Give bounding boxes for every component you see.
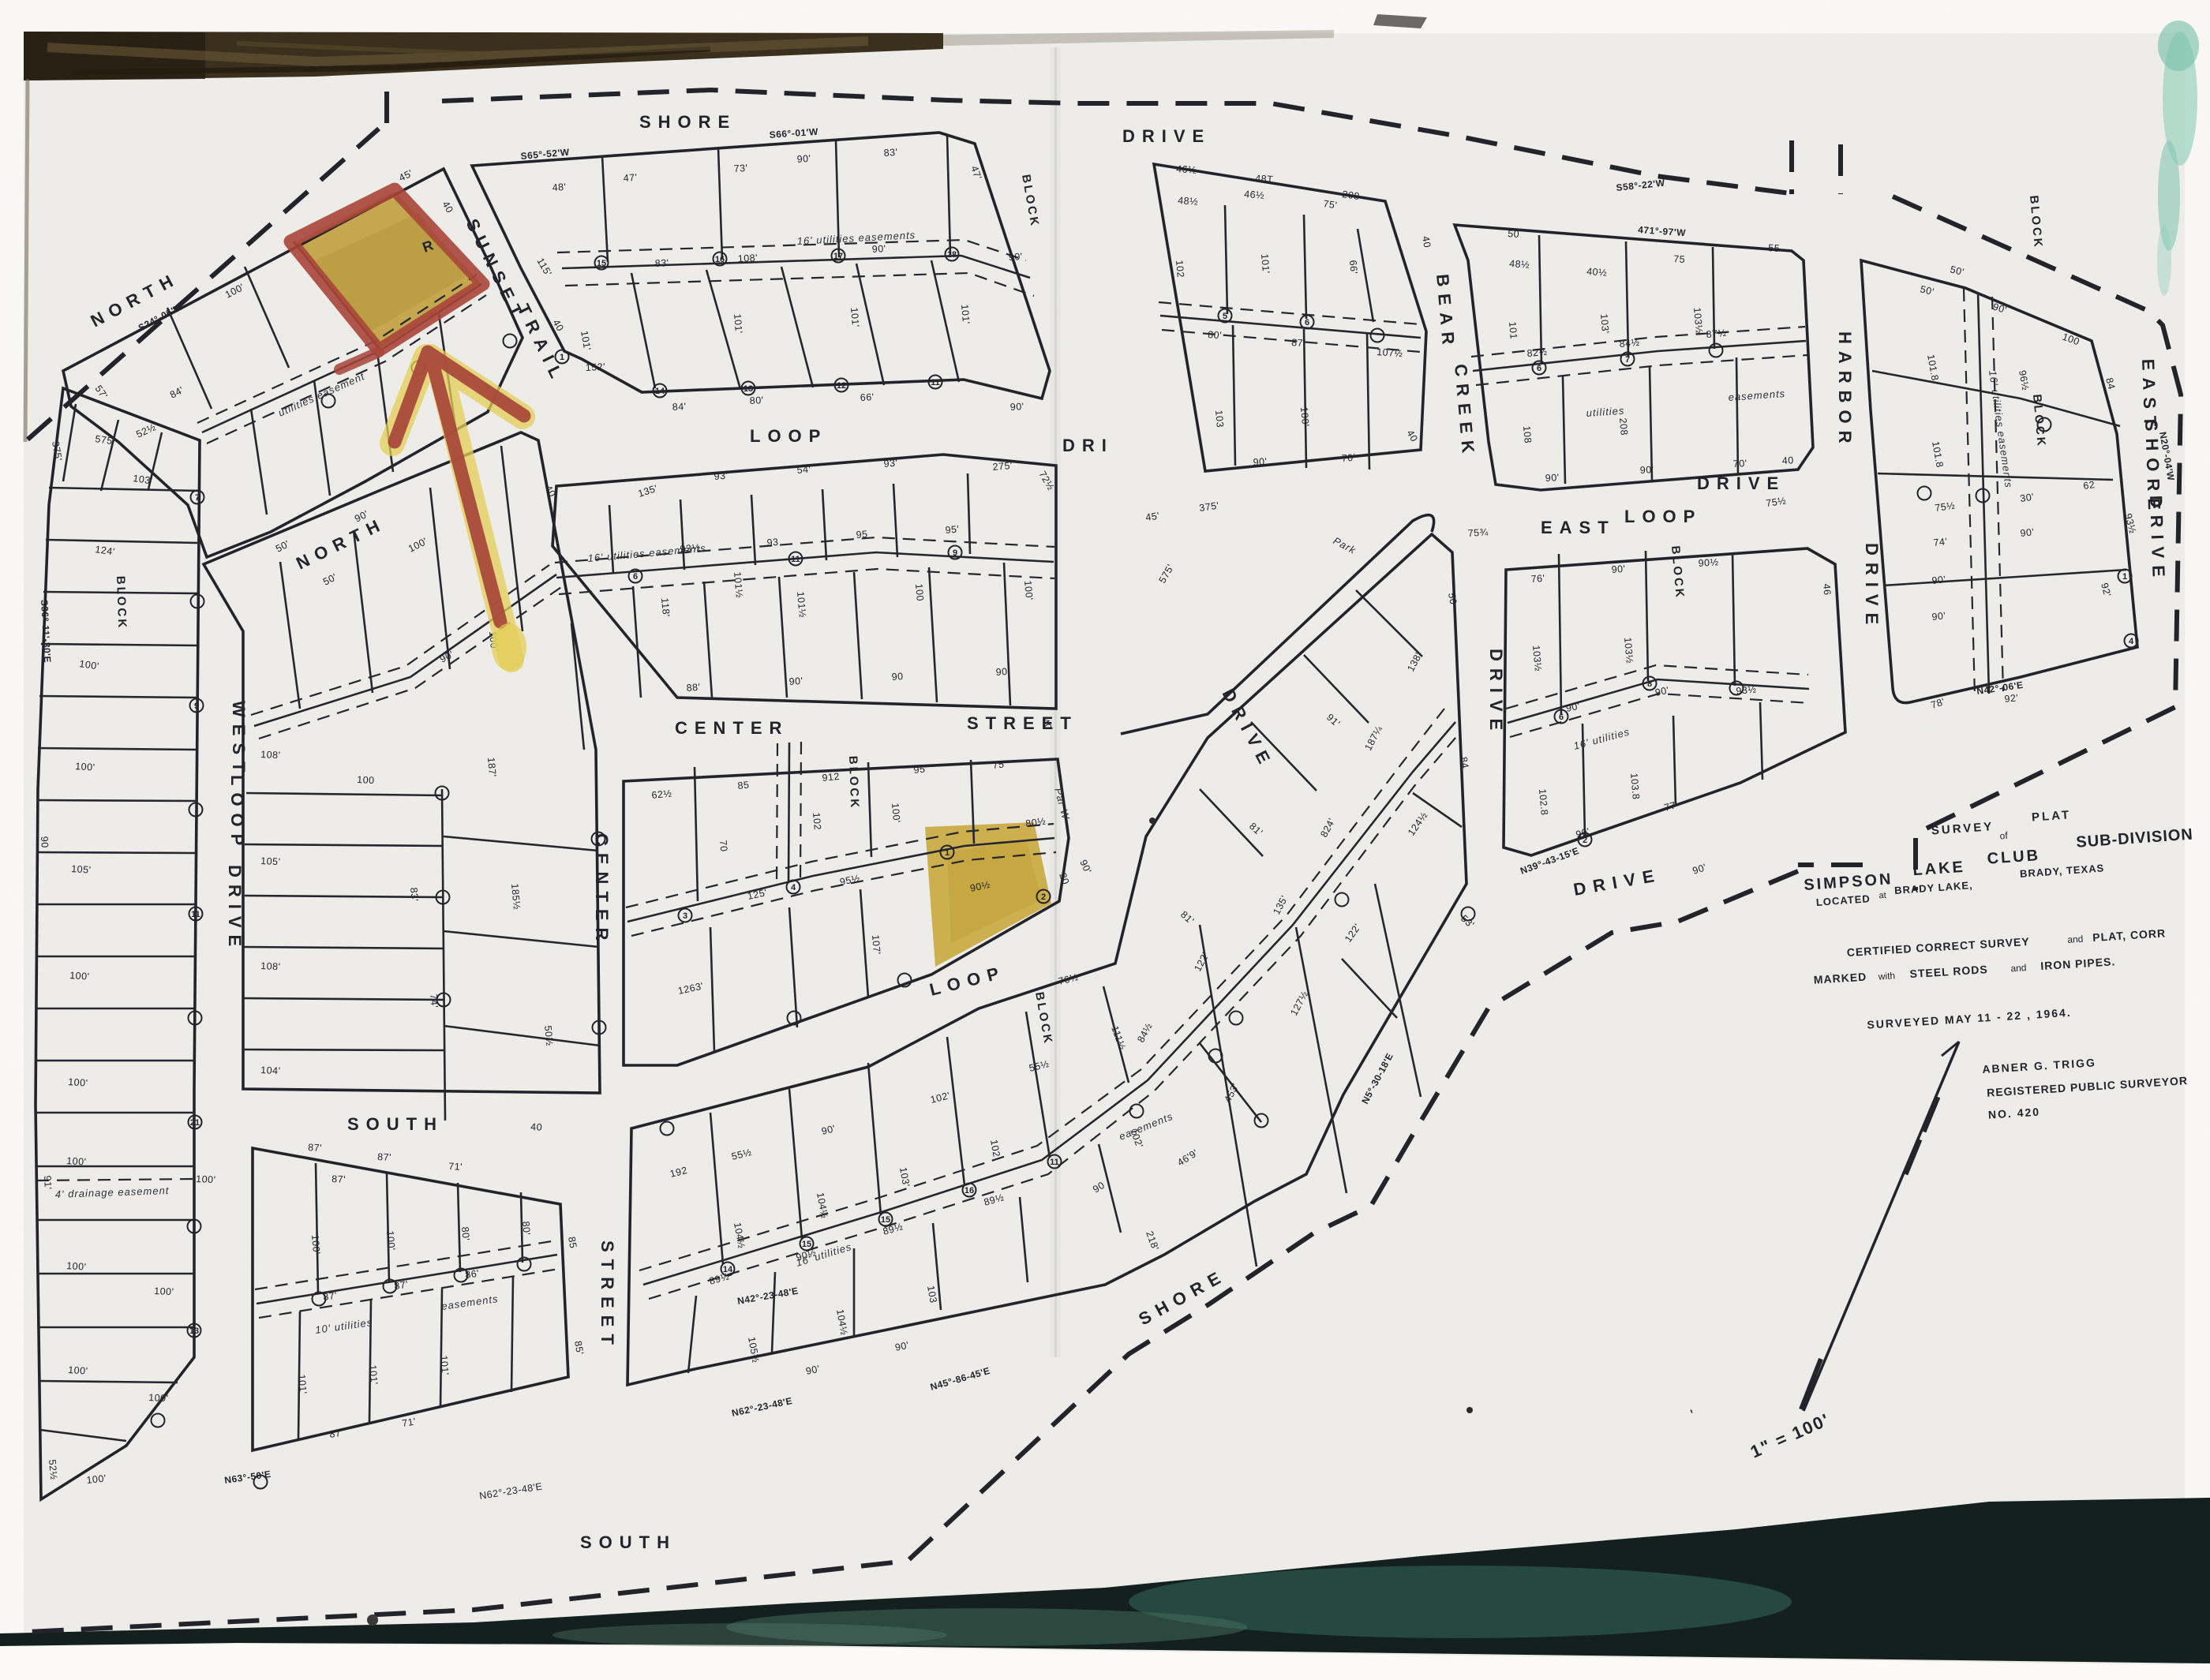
svg-text:90': 90' — [1611, 563, 1626, 575]
svg-text:DRI: DRI — [1062, 436, 1114, 455]
svg-text:90': 90' — [1931, 574, 1946, 586]
svg-text:105': 105' — [260, 855, 281, 867]
svg-text:75: 75 — [992, 759, 1005, 771]
svg-text:70': 70' — [1732, 458, 1747, 470]
svg-text:1: 1 — [560, 353, 564, 362]
svg-text:9: 9 — [194, 702, 199, 711]
svg-text:100': 100' — [1022, 580, 1035, 601]
svg-text:93: 93 — [766, 537, 779, 548]
svg-text:187': 187' — [485, 757, 498, 777]
svg-text:87': 87' — [377, 1151, 392, 1163]
svg-text:90': 90' — [871, 243, 886, 255]
svg-text:87': 87' — [331, 1173, 346, 1185]
svg-text:18: 18 — [947, 250, 957, 260]
svg-text:100': 100' — [66, 1155, 87, 1168]
svg-text:100': 100' — [86, 1472, 107, 1486]
svg-text:101': 101' — [732, 313, 744, 334]
svg-text:91': 91' — [42, 1175, 54, 1190]
svg-text:50½: 50½ — [542, 1025, 555, 1046]
svg-text:75¾: 75¾ — [1467, 526, 1489, 539]
svg-text:DRIVE: DRIVE — [1697, 473, 1785, 493]
svg-text:104': 104' — [260, 1064, 281, 1076]
svg-text:80': 80' — [520, 1221, 532, 1236]
svg-text:85: 85 — [566, 1236, 579, 1249]
svg-text:HARBOR: HARBOR — [1835, 331, 1855, 451]
svg-text:80': 80' — [749, 395, 764, 406]
svg-text:40½: 40½ — [1586, 266, 1608, 279]
svg-text:102.8: 102.8 — [1537, 788, 1550, 816]
svg-text:100': 100' — [69, 970, 90, 982]
svg-text:4: 4 — [2129, 637, 2134, 646]
svg-text:100': 100' — [1298, 406, 1311, 427]
svg-text:70': 70' — [1341, 452, 1356, 464]
svg-text:100': 100' — [384, 1230, 397, 1251]
svg-text:108': 108' — [260, 749, 281, 761]
svg-text:108': 108' — [260, 960, 281, 972]
svg-text:62: 62 — [2082, 479, 2096, 492]
svg-text:108: 108 — [1521, 425, 1534, 443]
svg-text:SOUTH: SOUTH — [347, 1114, 444, 1134]
svg-text:93': 93' — [714, 470, 729, 481]
svg-text:7: 7 — [195, 493, 200, 503]
svg-text:6: 6 — [1559, 713, 1564, 722]
svg-text:CENTER: CENTER — [675, 718, 788, 738]
svg-text:100: 100 — [913, 583, 926, 601]
svg-text:9: 9 — [953, 548, 957, 558]
svg-text:83': 83' — [883, 147, 898, 159]
svg-text:102: 102 — [1174, 260, 1186, 278]
svg-text:100': 100' — [196, 1173, 216, 1185]
svg-text:105': 105' — [71, 863, 92, 876]
svg-text:11: 11 — [1050, 1158, 1059, 1167]
svg-text:103½: 103½ — [1622, 637, 1635, 664]
svg-text:90': 90' — [1253, 456, 1268, 468]
svg-text:50: 50 — [1446, 592, 1459, 605]
svg-text:90': 90' — [2020, 526, 2035, 539]
svg-text:15: 15 — [802, 1240, 811, 1249]
svg-text:11: 11 — [931, 378, 940, 387]
svg-text:11: 11 — [191, 910, 200, 919]
svg-text:14: 14 — [723, 1265, 733, 1274]
svg-text:STREET: STREET — [597, 1240, 617, 1352]
svg-text:100': 100' — [75, 761, 96, 773]
svg-text:100': 100' — [66, 1260, 87, 1273]
svg-text:BLOCK: BLOCK — [114, 576, 129, 630]
svg-text:DRIVE: DRIVE — [225, 865, 245, 953]
svg-text:48½: 48½ — [1178, 195, 1199, 208]
svg-text:103½: 103½ — [1530, 645, 1544, 672]
svg-text:4: 4 — [791, 883, 796, 892]
svg-text:107': 107' — [870, 934, 882, 955]
svg-text:and: and — [2010, 962, 2027, 974]
svg-text:52½: 52½ — [47, 1459, 59, 1480]
svg-text:90': 90' — [788, 675, 803, 687]
svg-text:45': 45' — [1144, 511, 1160, 523]
svg-text:87½: 87½ — [1706, 327, 1727, 340]
svg-text:912: 912 — [822, 771, 841, 784]
svg-text:103: 103 — [1213, 410, 1226, 428]
svg-text:101½: 101½ — [795, 591, 808, 618]
svg-text:87': 87' — [308, 1142, 323, 1154]
svg-text:103': 103' — [1598, 313, 1611, 334]
svg-text:55: 55 — [1768, 242, 1781, 254]
svg-text:90': 90' — [1545, 472, 1560, 484]
svg-text:66': 66' — [860, 391, 875, 403]
svg-text:101': 101' — [848, 307, 861, 327]
svg-text:107½: 107½ — [1377, 346, 1403, 359]
svg-text:STREET: STREET — [967, 713, 1078, 733]
svg-text:100': 100' — [154, 1285, 174, 1297]
svg-text:85: 85 — [737, 780, 750, 791]
svg-text:90: 90 — [39, 836, 51, 848]
svg-text:95: 95 — [856, 529, 868, 541]
svg-text:13: 13 — [189, 1326, 199, 1336]
svg-text:70: 70 — [717, 840, 729, 852]
svg-text:80': 80' — [1208, 329, 1223, 341]
svg-text:6: 6 — [1305, 318, 1309, 327]
svg-text:118': 118' — [659, 597, 672, 617]
svg-text:101': 101' — [438, 1355, 451, 1375]
svg-text:PLAT: PLAT — [2032, 808, 2072, 824]
svg-text:EAST: EAST — [1541, 518, 1616, 537]
svg-text:16: 16 — [965, 1186, 974, 1195]
svg-text:102: 102 — [811, 812, 823, 830]
svg-text:101: 101 — [1507, 321, 1519, 339]
svg-text:100': 100' — [309, 1234, 322, 1255]
svg-text:of: of — [1999, 830, 2009, 842]
svg-text:101½: 101½ — [732, 571, 745, 598]
svg-text:12: 12 — [837, 381, 846, 391]
svg-text:DRIVE: DRIVE — [1862, 543, 1882, 631]
svg-text:101': 101' — [367, 1364, 380, 1385]
svg-text:46½: 46½ — [1176, 163, 1197, 176]
svg-text:2: 2 — [1583, 836, 1587, 845]
svg-text:75: 75 — [1673, 253, 1686, 265]
svg-text:40: 40 — [1420, 235, 1433, 249]
svg-text:152': 152' — [585, 361, 605, 373]
svg-text:48½: 48½ — [1509, 258, 1530, 271]
svg-text:CLUB: CLUB — [1987, 847, 2041, 868]
svg-text:75': 75' — [1323, 198, 1339, 211]
svg-text:90': 90' — [995, 666, 1010, 678]
svg-text:BLOCK: BLOCK — [846, 756, 861, 810]
svg-text:13: 13 — [744, 384, 753, 394]
svg-text:83': 83' — [654, 257, 669, 269]
svg-text:90': 90' — [796, 153, 811, 165]
svg-text:48T: 48T — [1255, 173, 1274, 185]
svg-text:103.8: 103.8 — [1628, 773, 1642, 800]
svg-text:80': 80' — [459, 1226, 471, 1241]
svg-text:74': 74' — [1933, 536, 1948, 548]
svg-text:40: 40 — [530, 1121, 543, 1133]
svg-text:46: 46 — [1821, 583, 1833, 596]
svg-text:WEST: WEST — [229, 701, 249, 780]
svg-text:100: 100 — [357, 774, 375, 786]
svg-text:100': 100' — [148, 1392, 169, 1404]
svg-text:76': 76' — [1530, 573, 1545, 585]
svg-text:LAKE: LAKE — [1912, 859, 1966, 880]
svg-text:90½: 90½ — [1698, 556, 1719, 569]
svg-text:15: 15 — [881, 1215, 890, 1225]
svg-text:62½: 62½ — [651, 788, 672, 801]
svg-text:2: 2 — [1041, 892, 1046, 902]
svg-text:95': 95' — [945, 523, 960, 535]
svg-text:101': 101' — [959, 304, 972, 324]
svg-text:6: 6 — [1537, 364, 1541, 373]
svg-text:93': 93' — [883, 457, 898, 469]
svg-text:93½: 93½ — [680, 542, 701, 555]
svg-text:8: 8 — [1647, 679, 1652, 689]
svg-text:LOOP: LOOP — [750, 426, 827, 446]
svg-text:15: 15 — [597, 259, 606, 268]
svg-text:CENTER: CENTER — [592, 833, 612, 947]
svg-text:at: at — [1878, 891, 1886, 901]
svg-text:73': 73' — [733, 163, 748, 174]
svg-text:21: 21 — [190, 1118, 200, 1128]
svg-text:101': 101' — [296, 1374, 309, 1394]
svg-text:DRIVE: DRIVE — [1122, 126, 1211, 146]
svg-text:90': 90' — [1008, 251, 1023, 263]
svg-text:100': 100' — [68, 1076, 88, 1089]
svg-text:SHORE: SHORE — [639, 112, 736, 132]
svg-text:48': 48' — [552, 181, 567, 193]
svg-text:71': 71' — [401, 1416, 417, 1429]
svg-text:101': 101' — [1259, 253, 1272, 274]
svg-text:3: 3 — [683, 911, 687, 921]
svg-text:and: and — [2067, 934, 2084, 945]
svg-text:66': 66' — [1347, 260, 1359, 275]
svg-text:6: 6 — [633, 572, 638, 582]
svg-text:40: 40 — [1781, 455, 1794, 466]
svg-text:95': 95' — [913, 763, 928, 776]
svg-text:100': 100' — [890, 803, 902, 823]
svg-text:87': 87' — [1291, 337, 1306, 349]
svg-text:16: 16 — [715, 255, 725, 264]
svg-text:87': 87' — [328, 1427, 344, 1440]
svg-text:54': 54' — [796, 463, 811, 475]
svg-text:DRIVE: DRIVE — [2146, 495, 2169, 584]
svg-text:5: 5 — [1223, 312, 1227, 321]
svg-text:84: 84 — [1458, 756, 1470, 769]
svg-text:46½: 46½ — [1244, 189, 1265, 201]
svg-text:17: 17 — [833, 252, 843, 261]
svg-text:71': 71' — [448, 1161, 463, 1173]
svg-text:208: 208 — [1617, 417, 1630, 436]
svg-text:84½: 84½ — [1619, 337, 1640, 350]
svg-text:275': 275' — [992, 460, 1013, 473]
svg-text:90': 90' — [1931, 610, 1946, 623]
svg-text:100': 100' — [68, 1364, 88, 1377]
svg-text:103½: 103½ — [1691, 307, 1705, 334]
svg-text:90': 90' — [1009, 401, 1024, 413]
svg-text:SOUTH: SOUTH — [580, 1532, 676, 1552]
svg-text:14: 14 — [655, 387, 665, 396]
svg-text:83': 83' — [408, 887, 420, 902]
svg-text:47': 47' — [623, 172, 638, 184]
svg-text:84': 84' — [672, 401, 687, 413]
svg-text:90: 90 — [891, 671, 904, 683]
svg-text:7: 7 — [1625, 355, 1630, 365]
svg-text:88': 88' — [686, 682, 701, 694]
svg-text:LOOP: LOOP — [227, 775, 247, 852]
svg-text:108': 108' — [737, 253, 758, 264]
svg-text:1: 1 — [945, 848, 950, 858]
svg-text:11: 11 — [791, 555, 800, 564]
svg-text:90': 90' — [1639, 464, 1654, 476]
svg-text:82½: 82½ — [1526, 346, 1548, 359]
svg-text:DRIVE: DRIVE — [1486, 649, 1506, 737]
svg-text:50: 50 — [1508, 228, 1520, 240]
svg-text:1: 1 — [2122, 572, 2127, 582]
svg-text:with: with — [1877, 970, 1895, 982]
svg-text:185½: 185½ — [509, 883, 523, 910]
svg-text:LOOP: LOOP — [1624, 507, 1702, 526]
svg-text:92': 92' — [2004, 692, 2019, 705]
svg-text:30': 30' — [2019, 492, 2035, 504]
